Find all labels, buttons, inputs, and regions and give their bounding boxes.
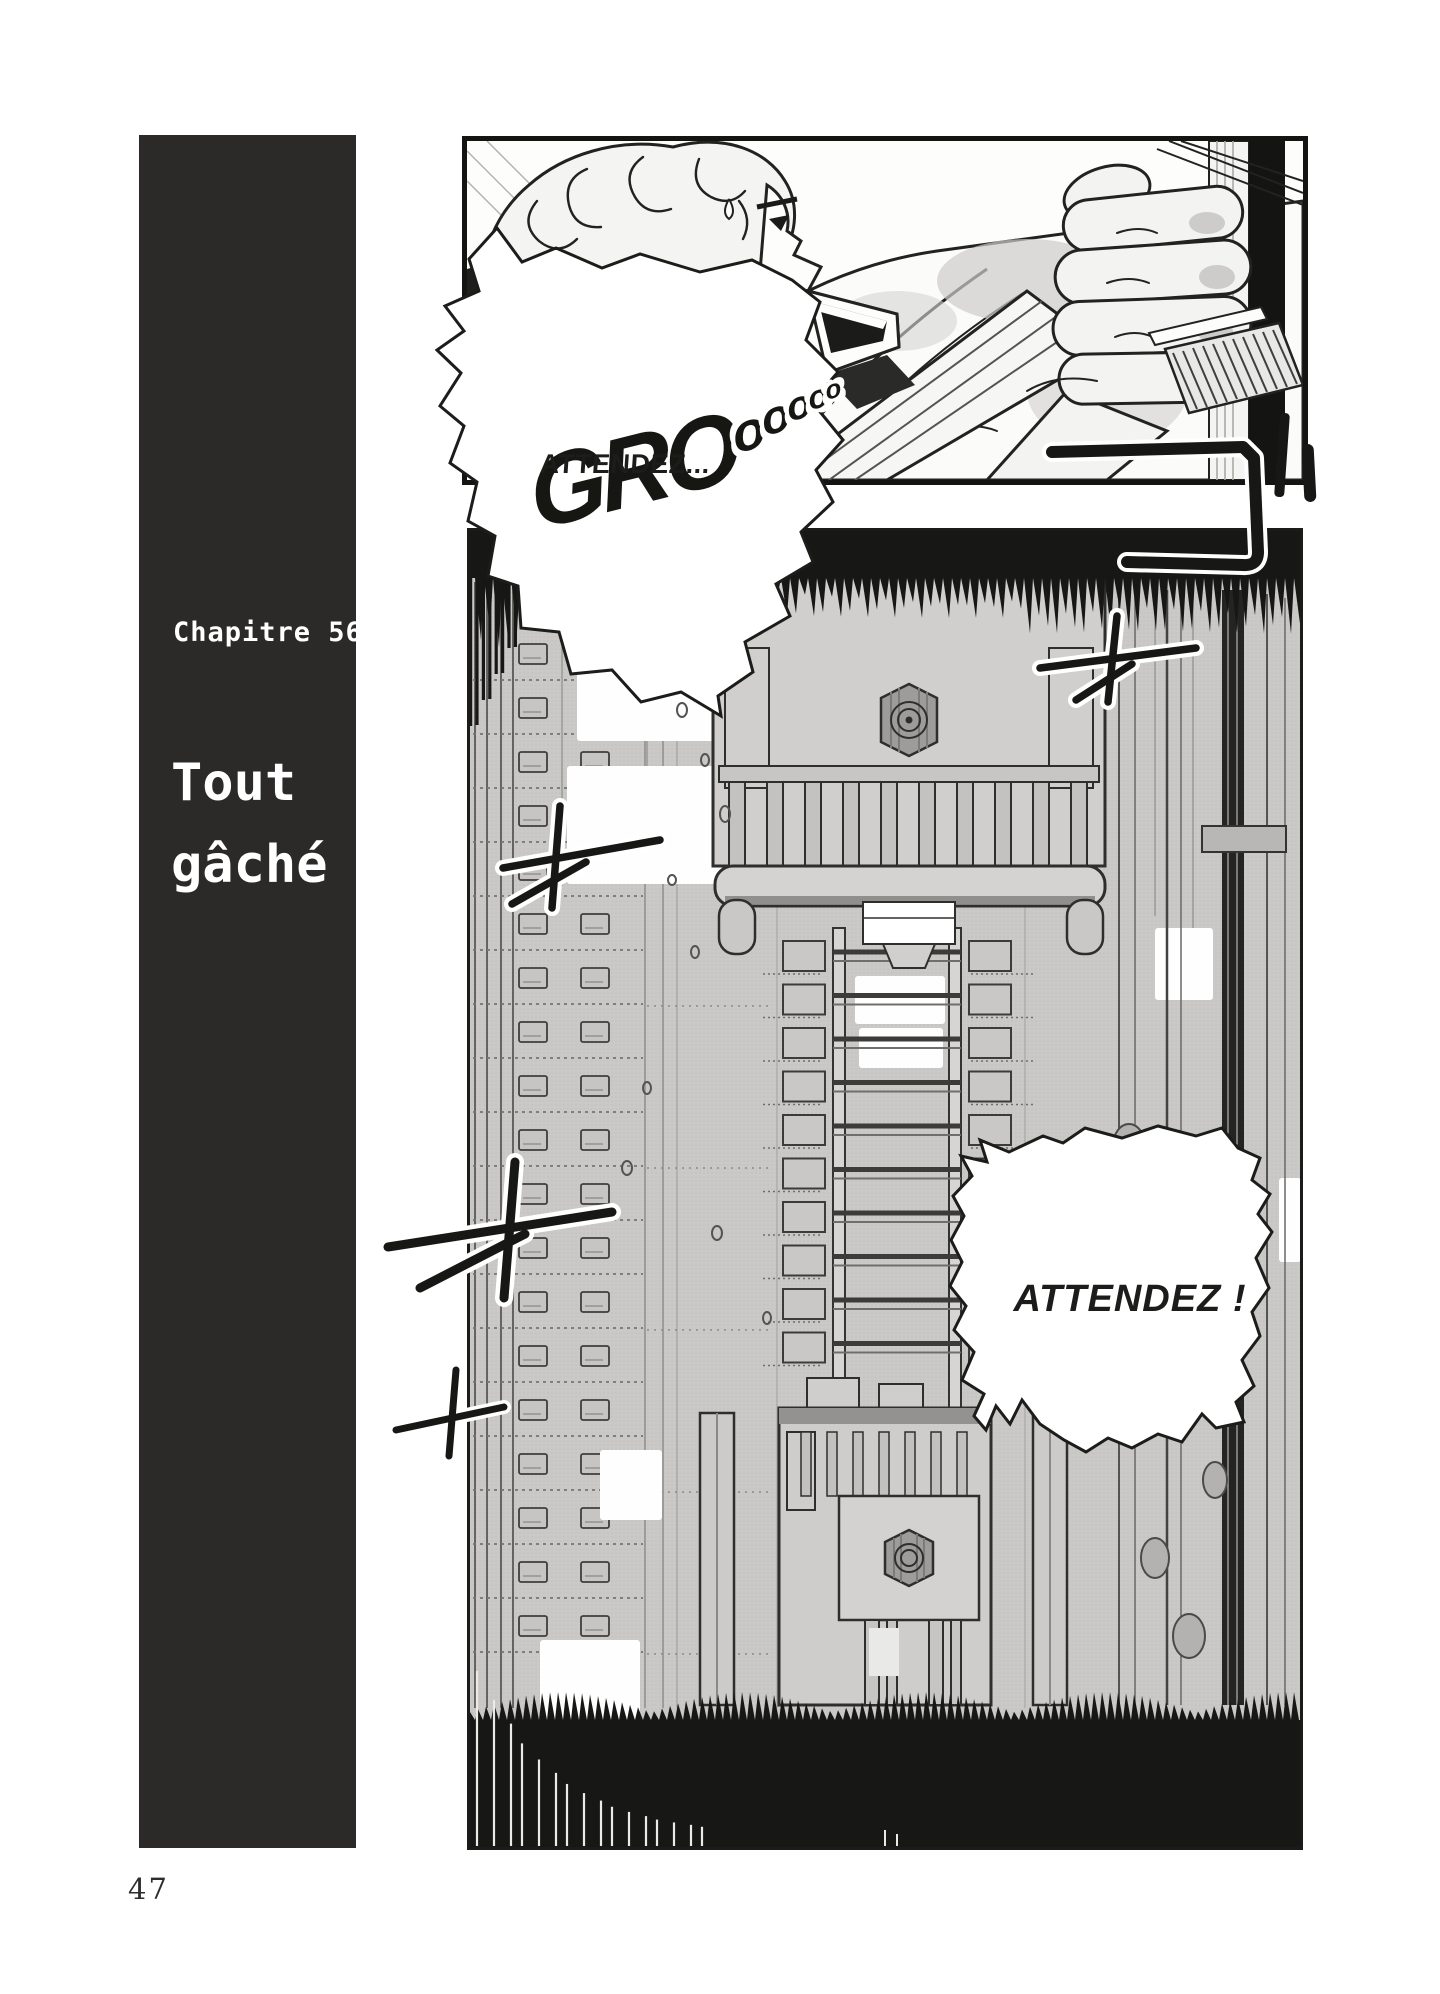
- emblem-top: [881, 684, 937, 756]
- emblem-bottom: [885, 1530, 933, 1586]
- speech-text-1: ATTENDEZ...: [539, 449, 731, 480]
- chapter-number: Chapitre 56: [173, 617, 363, 648]
- speech-text-2: ATTENDEZ !: [995, 1278, 1265, 1321]
- main-panel-art: [467, 528, 1303, 1850]
- main-panel: [467, 528, 1303, 1850]
- chapter-title-line-1: Tout: [171, 753, 296, 813]
- chapter-title-block: Chapitre 56 Tout gâché: [139, 135, 356, 1848]
- page-number: 47: [128, 1872, 169, 1906]
- manga-page: Chapitre 56 Tout gâché: [0, 0, 1440, 1994]
- chapter-title-line-2: gâché: [171, 835, 328, 895]
